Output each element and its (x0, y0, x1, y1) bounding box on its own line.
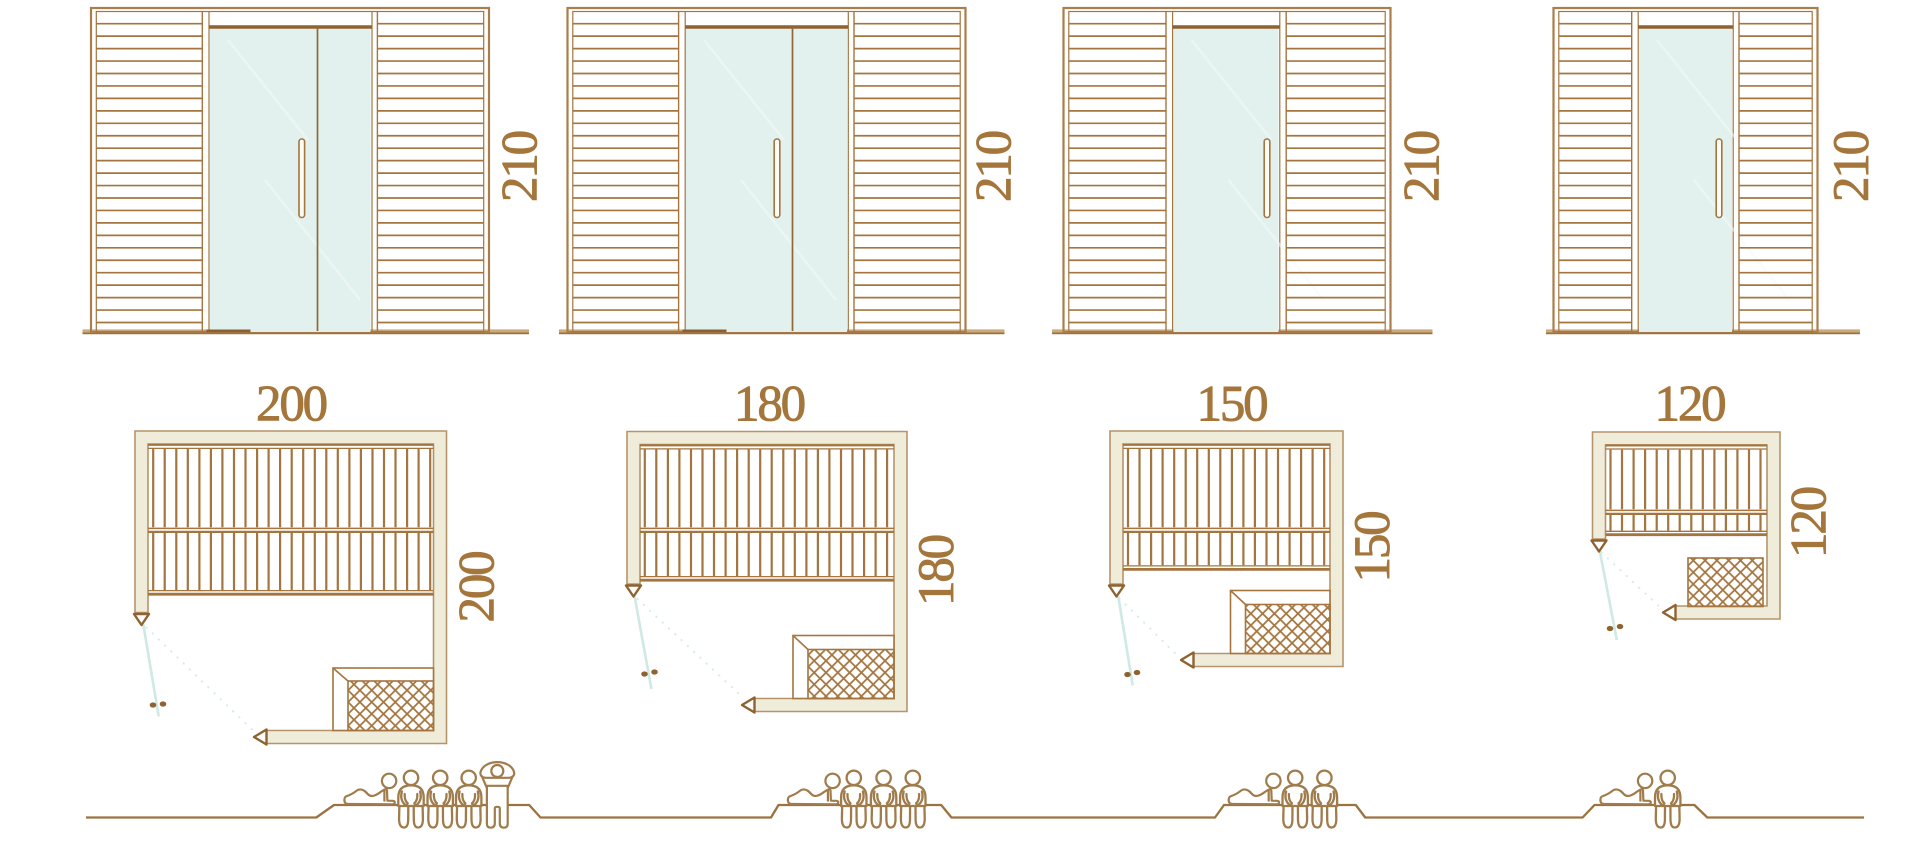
svg-text:210: 210 (967, 131, 1023, 202)
svg-text:200: 200 (449, 552, 505, 623)
svg-text:210: 210 (493, 131, 549, 202)
svg-text:120: 120 (1655, 377, 1726, 433)
svg-text:210: 210 (1395, 131, 1451, 202)
svg-text:150: 150 (1197, 377, 1268, 433)
svg-text:150: 150 (1345, 512, 1401, 583)
svg-text:210: 210 (1824, 131, 1880, 202)
svg-text:120: 120 (1781, 487, 1837, 558)
svg-text:180: 180 (909, 535, 965, 606)
svg-text:180: 180 (734, 377, 805, 433)
svg-text:200: 200 (256, 377, 327, 433)
